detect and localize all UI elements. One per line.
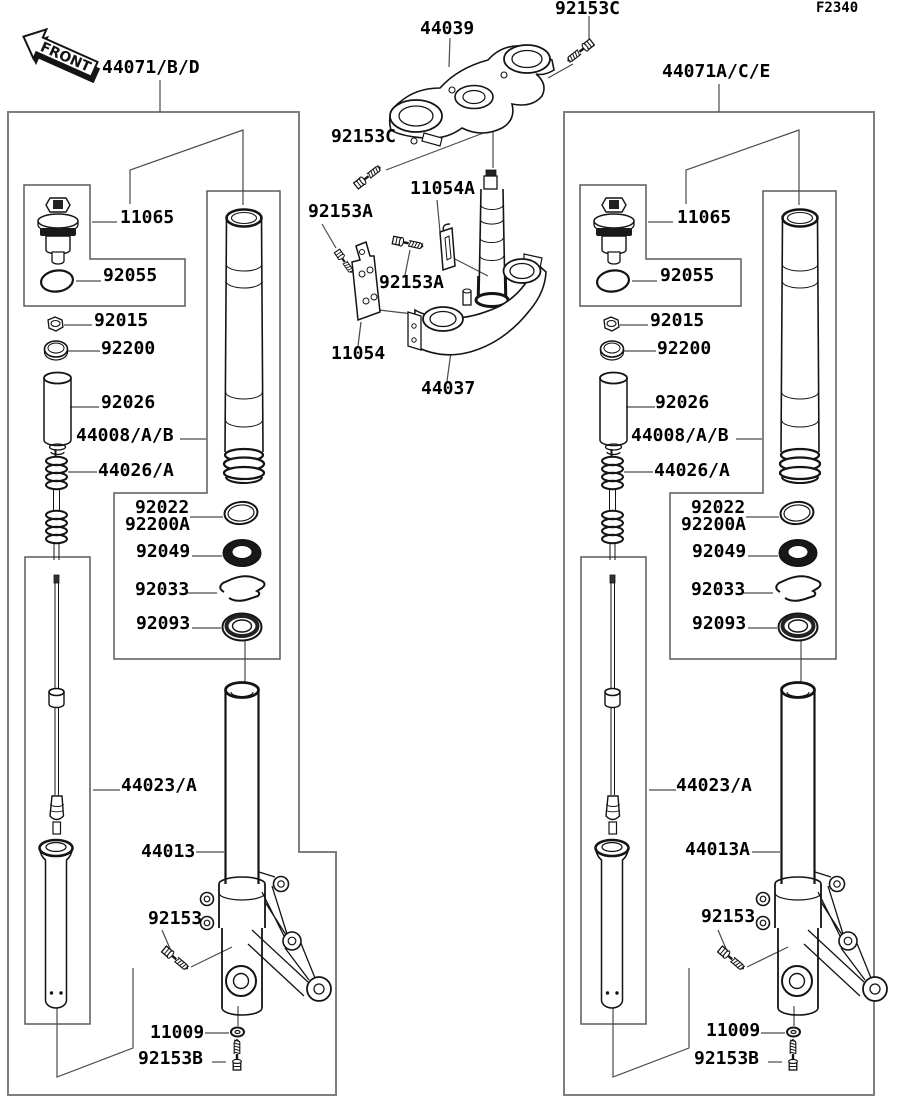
label-right-dust-seal: 92093 (692, 615, 746, 633)
label-left-outer-tube: 44013 (141, 843, 195, 861)
label-right-inner-tube: 44008/A/B (631, 427, 729, 445)
label-left-damper: 44023/A (121, 777, 197, 795)
figure-code: F2340 (816, 1, 858, 15)
label-right-bolt-92153b: 92153B (694, 1050, 759, 1068)
label-left-inner-tube: 44008/A/B (76, 427, 174, 445)
label-right-bolt-92153: 92153 (701, 908, 755, 926)
label-left-spring: 44026/A (98, 462, 174, 480)
bracket-bolt-2-drawing (392, 236, 424, 251)
label-left-stop-ring: 92033 (135, 581, 189, 599)
label-top-clamp-bolt: 92153C (555, 0, 620, 18)
parts-diagram-page: FRONT (0, 0, 914, 1103)
label-top-clamp: 44039 (420, 20, 474, 38)
label-bracket-bolt-2: 92153A (379, 274, 444, 292)
label-left-nut: 92015 (94, 312, 148, 330)
label-left-bolt-92153: 92153 (148, 910, 202, 928)
label-left-bolt-92153b: 92153B (138, 1050, 203, 1068)
label-bracket-bolt-1: 92153A (308, 203, 373, 221)
label-left-collar: 92026 (101, 394, 155, 412)
label-right-o-ring: 92055 (660, 267, 714, 285)
label-right-stop-ring: 92033 (691, 581, 745, 599)
label-right-outer-tube: 44013A (685, 841, 750, 859)
label-right-collar: 92026 (655, 394, 709, 412)
label-right-damper: 44023/A (676, 777, 752, 795)
upper-triple-clamp-drawing (390, 45, 554, 146)
label-right-oil-seal: 92049 (692, 543, 746, 561)
top-clamp-bolt-drawing (565, 39, 594, 65)
label-left-dust-seal: 92093 (136, 615, 190, 633)
label-bottom-clamp: 44037 (421, 380, 475, 398)
label-left-oil-seal: 92049 (136, 543, 190, 561)
label-left-assembly: 44071/B/D (102, 59, 200, 77)
left-damper-group-box (25, 557, 90, 1024)
label-left-ring: 92200 (101, 340, 155, 358)
label-left-fork-cap: 11065 (120, 209, 174, 227)
clamp-bracket-drawing (352, 242, 380, 320)
label-right-spring: 44026/A (654, 462, 730, 480)
lower-triple-clamp-drawing (408, 254, 546, 355)
label-right-nut: 92015 (650, 312, 704, 330)
label-right-ring: 92200 (657, 340, 711, 358)
label-right-washer: 11009 (706, 1022, 760, 1040)
side-clamp-bolt-drawing (353, 164, 382, 190)
label-right-ring-92200a: 92200A (681, 516, 746, 534)
right-damper-group-box (581, 557, 646, 1024)
front-arrow-logo: FRONT (15, 22, 106, 90)
label-clamp-bracket: 11054 (331, 345, 385, 363)
label-left-ring-92200a: 92200A (125, 516, 190, 534)
clamp-bracket-a-drawing (440, 224, 455, 270)
steering-stem-drawing (476, 170, 508, 307)
label-right-fork-cap: 11065 (677, 209, 731, 227)
label-clamp-bracket-a: 11054A (410, 180, 475, 198)
label-side-bolt: 92153C (331, 128, 396, 146)
label-left-washer: 11009 (150, 1024, 204, 1042)
label-left-o-ring: 92055 (103, 267, 157, 285)
label-right-assembly: 44071A/C/E (662, 63, 770, 81)
